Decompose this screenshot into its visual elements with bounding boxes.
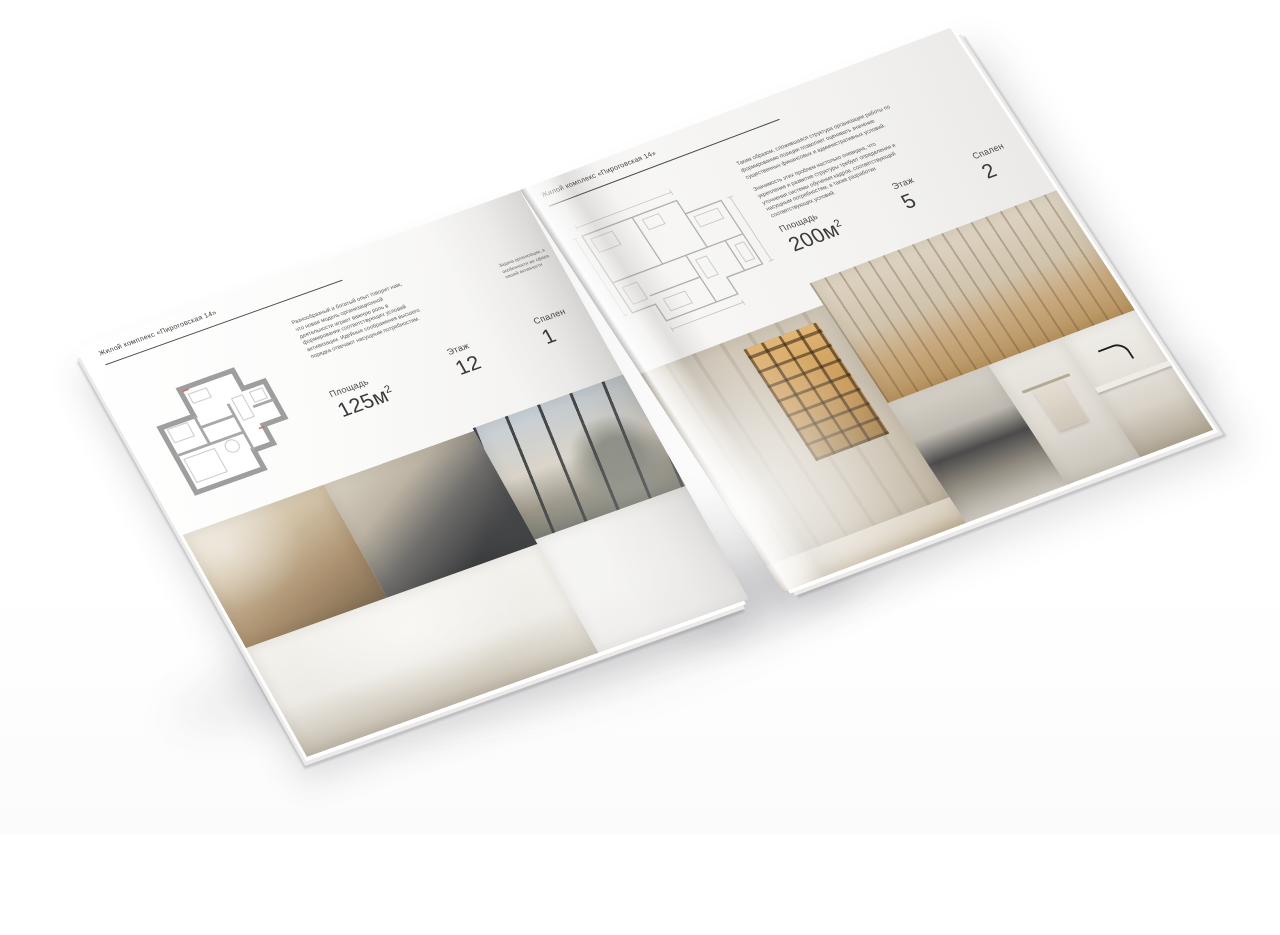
counter-detail [1095, 360, 1172, 393]
stat-area: Площадь 125м2 [327, 371, 399, 423]
left-page-header: Жилой комплекс «Пироговская 14» [98, 310, 218, 358]
stat-bedrooms: Спален 2 [970, 141, 1021, 184]
left-description-text: Разнообразный и богатый опыт говорит нам… [291, 280, 429, 362]
stat-floor-value: 5 [897, 186, 931, 214]
stat-floor: Этаж 5 [890, 175, 931, 214]
black-faucet-detail [1098, 341, 1135, 368]
stat-floor-value: 12 [451, 352, 485, 381]
brochure-mockup-scene: Жилой комплекс «Пироговская 14» [0, 0, 1280, 835]
stat-floor: Этаж 12 [445, 340, 486, 380]
towel-detail [1032, 379, 1088, 431]
left-fold-note-text: Задача организации, в особенности же сфе… [498, 247, 555, 281]
floor-plan-125-image [114, 332, 331, 515]
stat-bedrooms: Спален 1 [532, 306, 581, 349]
